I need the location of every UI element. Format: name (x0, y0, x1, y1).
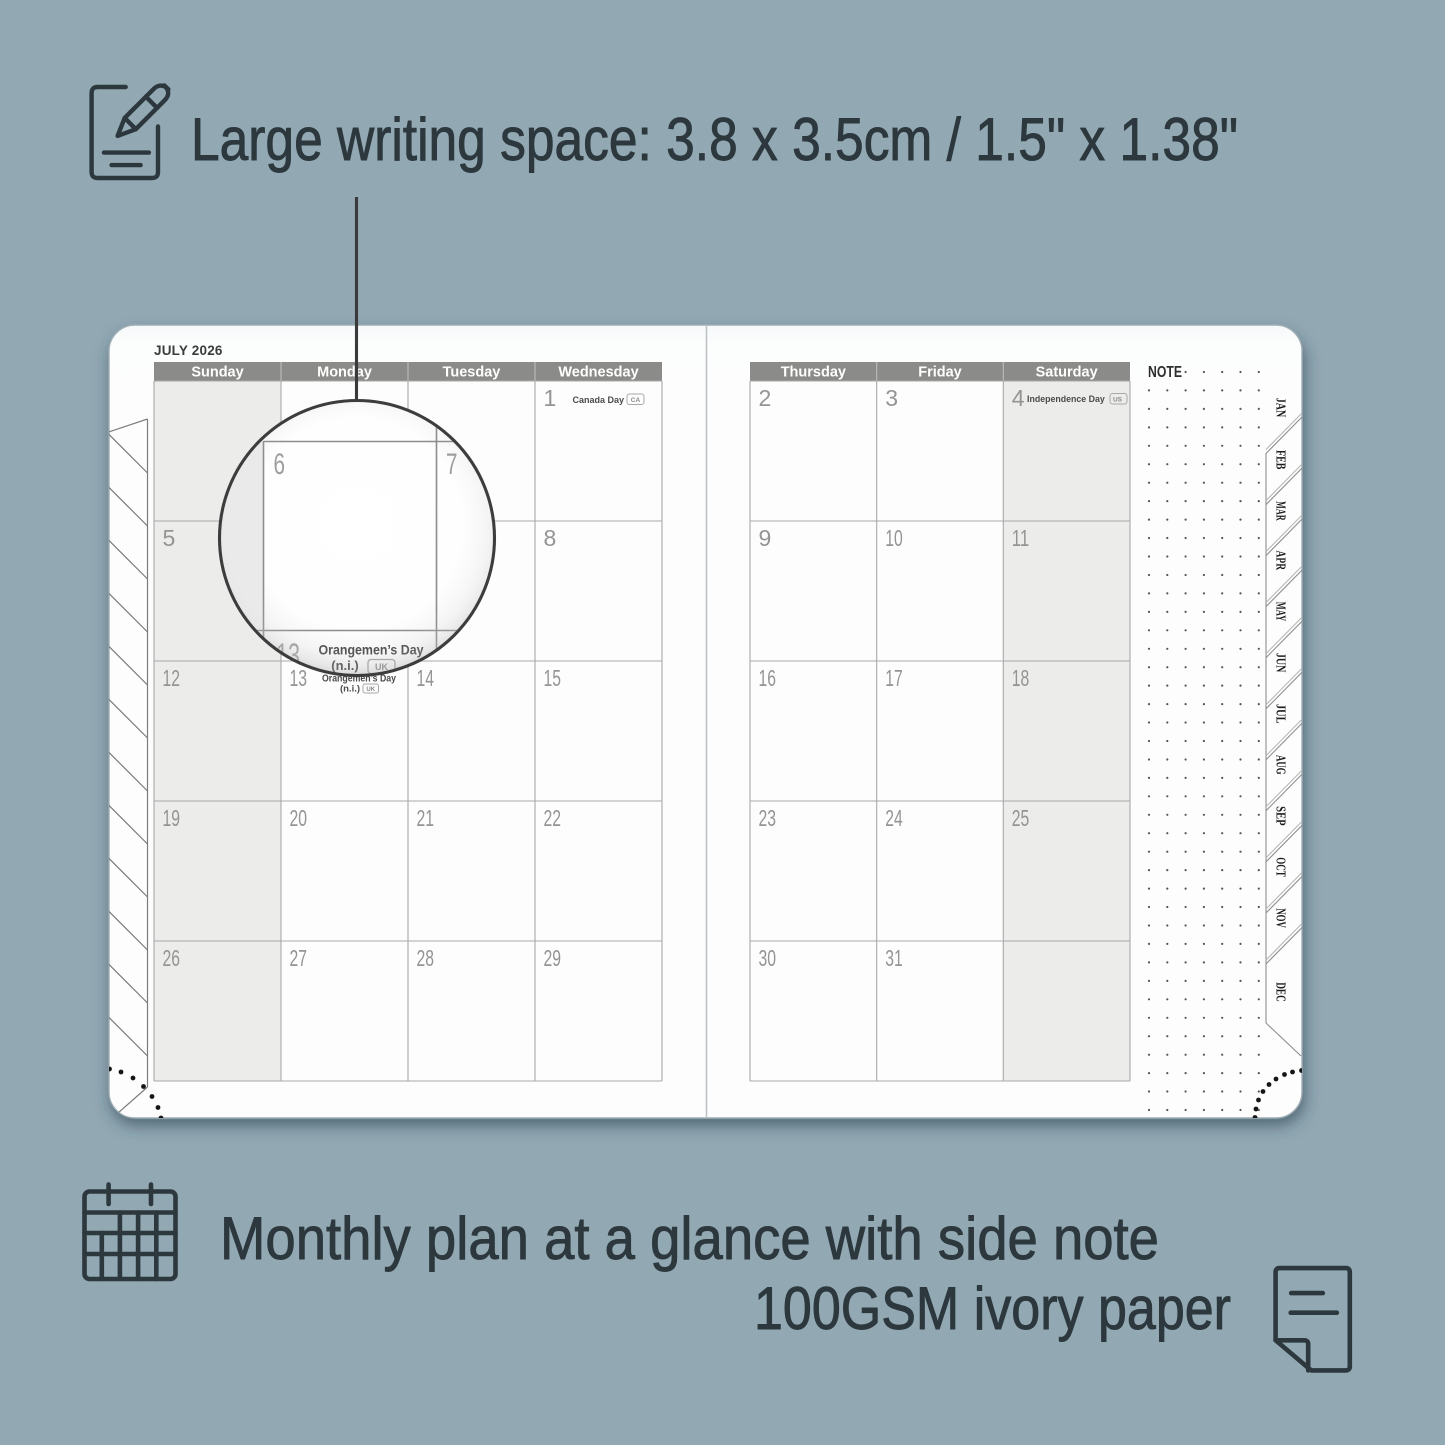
svg-text:25: 25 (1012, 805, 1030, 831)
svg-text:2: 2 (759, 385, 772, 411)
svg-text:SEP: SEP (1273, 806, 1288, 826)
svg-text:10: 10 (885, 525, 903, 551)
svg-text:NOTE: NOTE (1148, 364, 1182, 381)
svg-text:30: 30 (759, 945, 777, 971)
svg-text:17: 17 (885, 665, 903, 691)
svg-text:JAN: JAN (1273, 398, 1288, 418)
svg-text:Large writing space: 3.8 x 3.5: Large writing space: 3.8 x 3.5cm / 1.5" … (191, 106, 1238, 173)
svg-text:JULY 2026: JULY 2026 (154, 343, 223, 358)
svg-text:Monday: Monday (317, 365, 372, 381)
svg-text:18: 18 (1012, 665, 1030, 691)
svg-text:8: 8 (544, 525, 557, 551)
svg-text:100GSM ivory paper: 100GSM ivory paper (754, 1275, 1231, 1342)
svg-text:13: 13 (290, 665, 308, 691)
svg-text:Thursday: Thursday (781, 365, 846, 381)
svg-text:23: 23 (759, 805, 777, 831)
svg-text:14: 14 (417, 665, 435, 691)
svg-text:DEC: DEC (1273, 982, 1288, 1002)
svg-text:Tuesday: Tuesday (443, 365, 501, 381)
svg-text:OCT: OCT (1273, 857, 1288, 877)
svg-text:JUL: JUL (1273, 704, 1288, 724)
svg-text:26: 26 (163, 945, 181, 971)
svg-text:MAY: MAY (1273, 602, 1288, 622)
svg-text:5: 5 (163, 525, 176, 551)
svg-text:12: 12 (163, 665, 181, 691)
svg-text:27: 27 (290, 945, 308, 971)
svg-text:19: 19 (163, 805, 181, 831)
svg-text:Saturday: Saturday (1036, 365, 1098, 381)
svg-text:31: 31 (885, 945, 903, 971)
svg-text:JUN: JUN (1273, 653, 1288, 673)
svg-text:15: 15 (544, 665, 562, 691)
svg-text:16: 16 (759, 665, 777, 691)
svg-text:NOV: NOV (1273, 908, 1288, 928)
svg-text:24: 24 (885, 805, 903, 831)
svg-text:22: 22 (544, 805, 562, 831)
svg-text:20: 20 (290, 805, 308, 831)
svg-text:Sunday: Sunday (191, 365, 243, 381)
svg-text:1: 1 (544, 385, 557, 411)
svg-text:Monthly plan at a glance with: Monthly plan at a glance with side note (220, 1205, 1159, 1272)
svg-text:29: 29 (544, 945, 562, 971)
svg-text:APR: APR (1273, 551, 1288, 571)
svg-text:UK: UK (366, 687, 375, 693)
svg-text:4: 4 (1012, 385, 1025, 411)
svg-text:MAR: MAR (1273, 501, 1288, 521)
svg-text:Friday: Friday (918, 365, 962, 381)
svg-text:(n.i.): (n.i.) (340, 684, 360, 695)
svg-text:9: 9 (759, 525, 772, 551)
svg-text:CA: CA (631, 397, 641, 404)
svg-text:3: 3 (885, 385, 898, 411)
svg-text:AUG: AUG (1273, 755, 1288, 775)
svg-text:28: 28 (417, 945, 435, 971)
svg-text:FEB: FEB (1273, 450, 1288, 470)
svg-text:11: 11 (1012, 525, 1030, 551)
svg-text:US: US (1113, 397, 1123, 404)
svg-text:Wednesday: Wednesday (558, 365, 638, 381)
svg-text:Canada Day: Canada Day (572, 395, 624, 405)
svg-text:Independence Day: Independence Day (1027, 394, 1105, 404)
svg-text:21: 21 (417, 805, 435, 831)
